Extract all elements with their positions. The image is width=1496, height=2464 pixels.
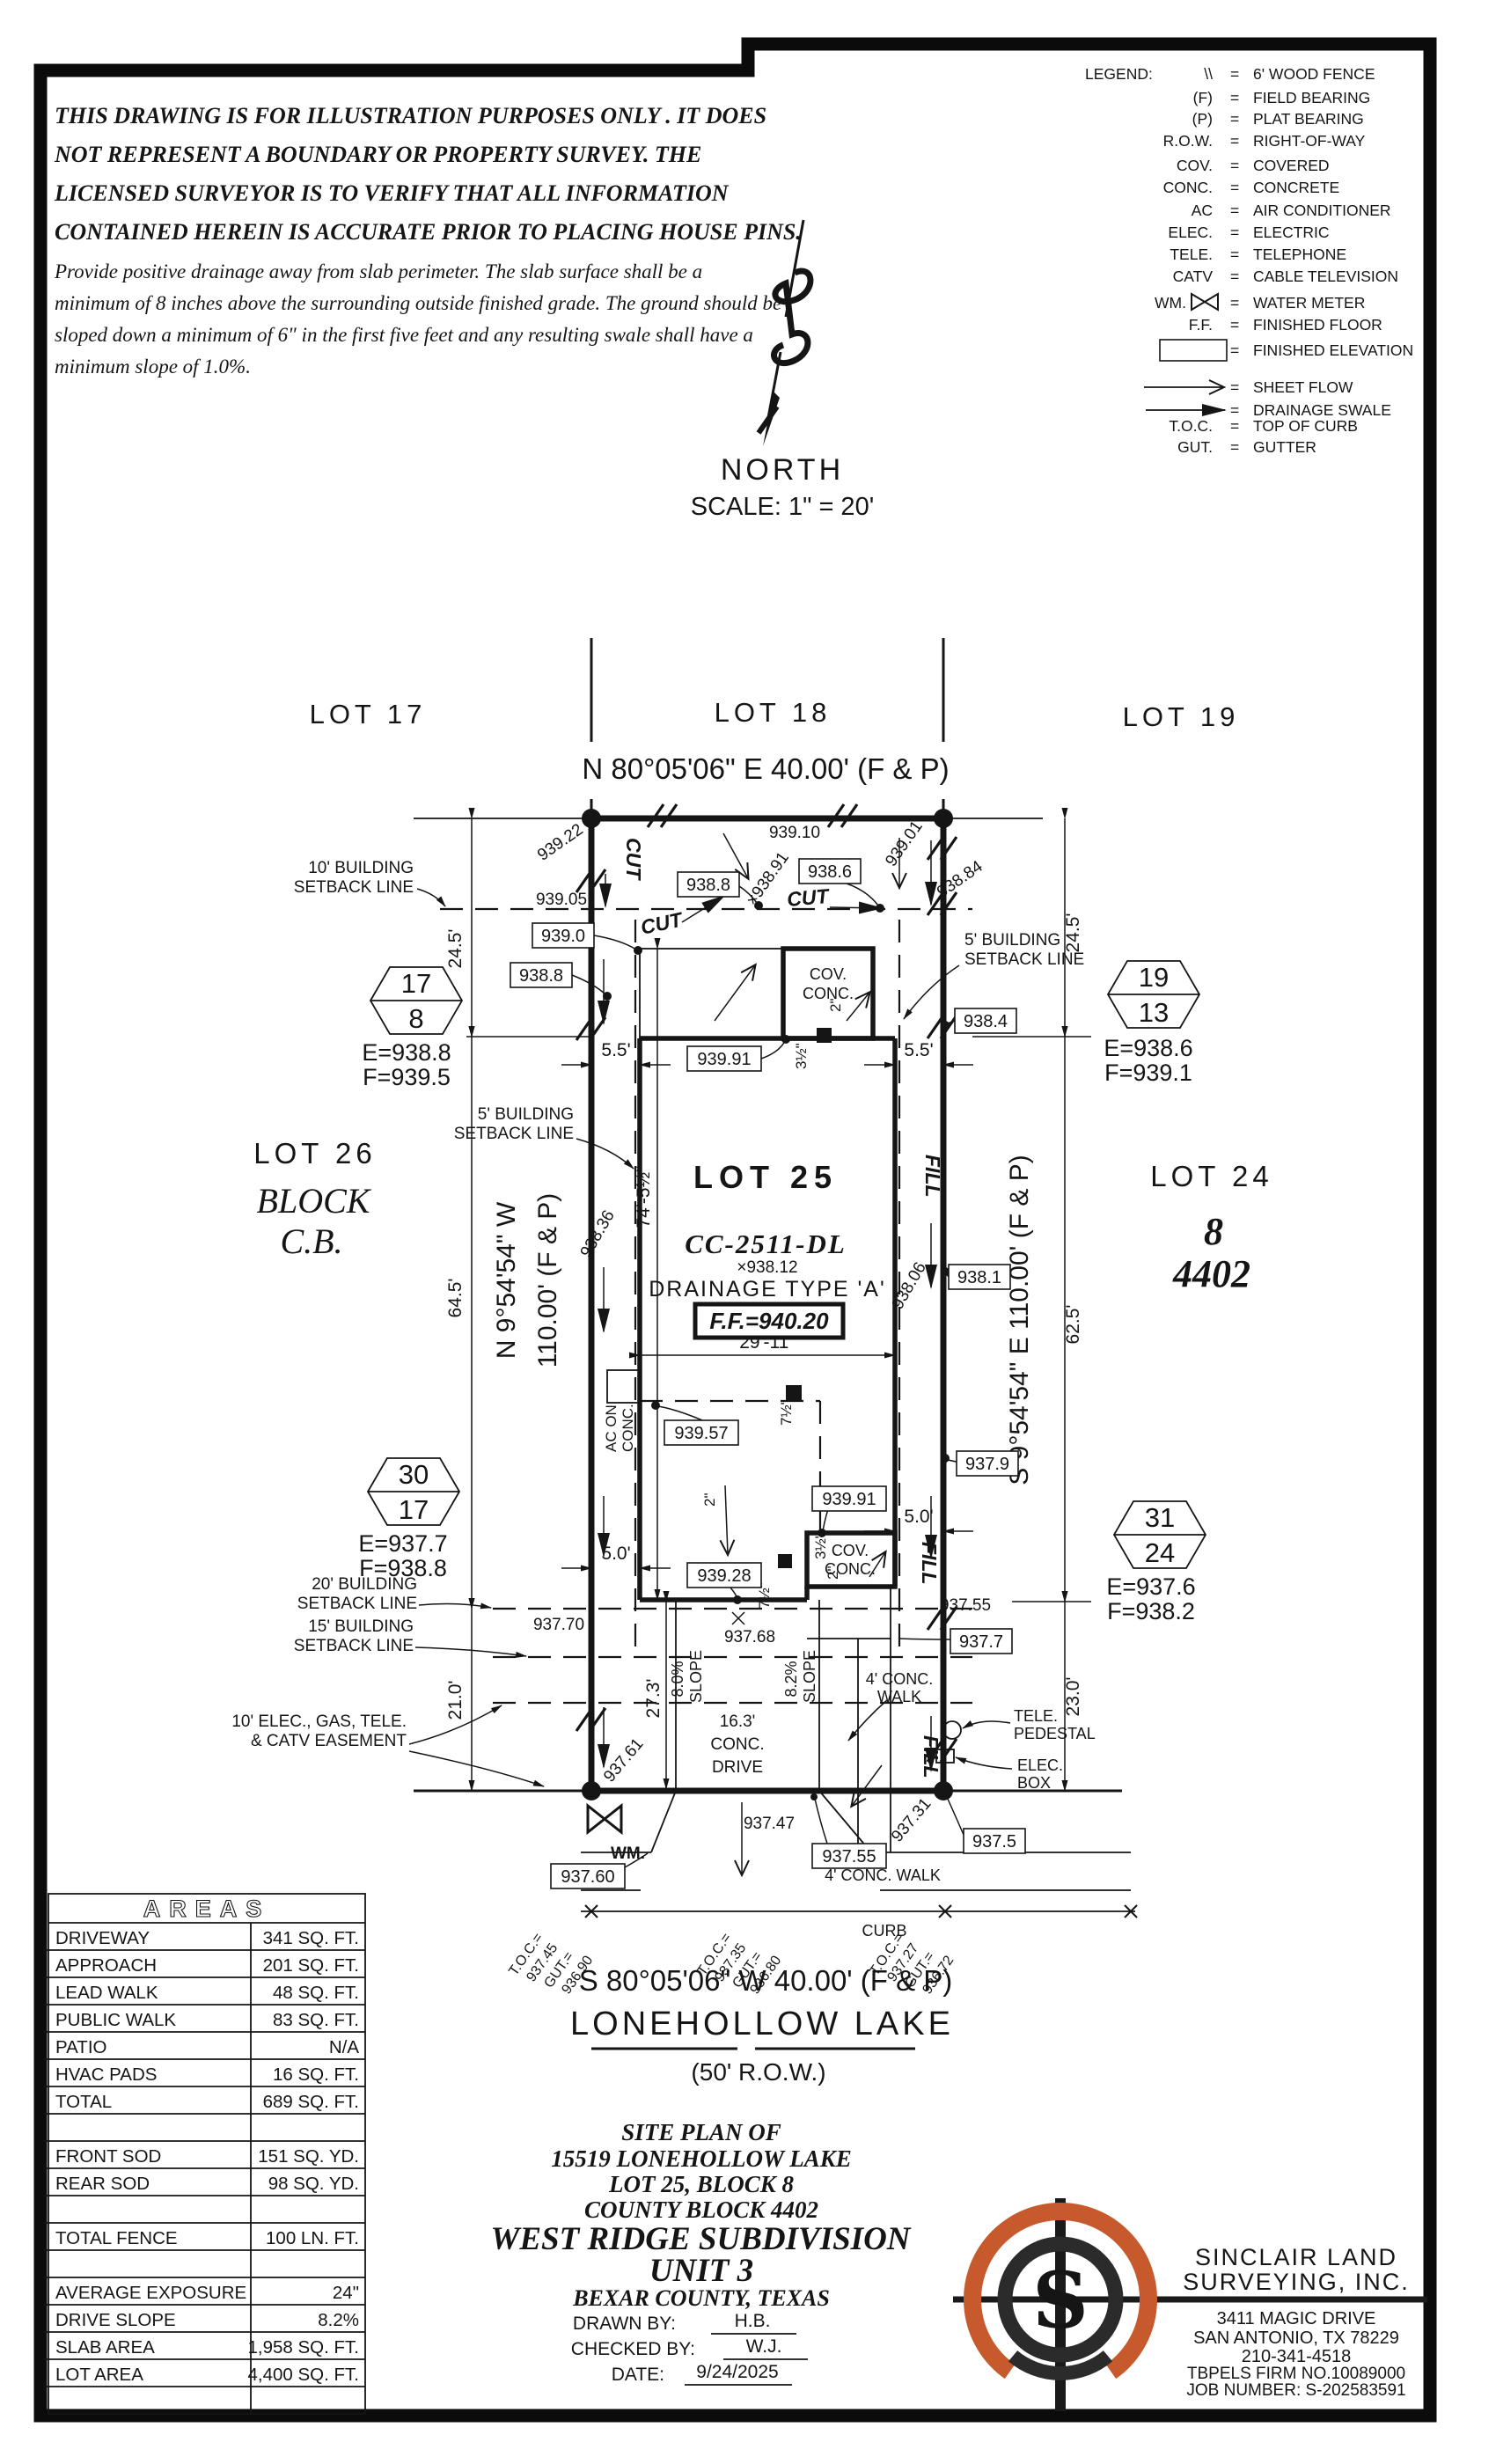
spot-elev: 937.61 — [600, 1734, 647, 1786]
hex-f-value: F=939.1 — [1104, 1060, 1192, 1086]
disclaimer-line: CONTAINED HEREIN IS ACCURATE PRIOR TO PL… — [55, 219, 802, 245]
lot26-label: LOT 26 — [253, 1137, 376, 1170]
legend-eq: = — [1230, 202, 1239, 219]
dim-24-5-east: 24.5' — [1063, 913, 1083, 953]
public-walk-label: 4' CONC. WALK — [825, 1866, 941, 1884]
legend-def: GUTTER — [1253, 438, 1316, 456]
areas-title: AREAS — [143, 1896, 271, 1922]
legend-title: LEGEND: — [1085, 65, 1153, 83]
easement-label-2: & CATV EASEMENT — [251, 1732, 407, 1750]
firm-name-1: SINCLAIR LAND — [1195, 2244, 1397, 2270]
legend-symbol: GUT. — [1177, 438, 1213, 456]
areas-row-label: TOTAL — [55, 2092, 112, 2112]
setback-5w-label-2: SETBACK LINE — [454, 1125, 574, 1143]
title-subdivision: WEST RIDGE SUBDIVISION — [490, 2221, 911, 2257]
hex-e-value: E=937.6 — [1106, 1573, 1195, 1600]
cut-label: CUT — [639, 907, 686, 939]
legend-def: FINISHED FLOOR — [1253, 316, 1382, 334]
drive-dim: 16.3' — [720, 1712, 756, 1731]
title-line: 15519 LONEHOLLOW LAKE — [551, 2145, 852, 2172]
areas-row-value: 201 SQ. FT. — [263, 1955, 359, 1976]
legend-eq: = — [1230, 89, 1239, 106]
areas-row-label: APPROACH — [55, 1955, 157, 1976]
legend-eq: = — [1230, 224, 1239, 241]
note-line: sloped down a minimum of 6" in the first… — [55, 324, 753, 346]
hex-top: 19 — [1139, 962, 1169, 993]
disclaimer-line: NOT REPRESENT A BOUNDARY OR PROPERTY SUR… — [54, 142, 701, 167]
legend-def: TOP OF CURB — [1253, 417, 1358, 435]
cut-label: CUT — [622, 838, 645, 881]
legend-eq: = — [1230, 157, 1239, 174]
lot19-label: LOT 19 — [1123, 701, 1240, 732]
cb-label: C.B. — [280, 1221, 342, 1261]
firm-block: S SINCLAIR LAND SURVEYING, INC. 3411 MAG… — [953, 2198, 1427, 2411]
cut-label: CUT — [786, 884, 831, 911]
areas-row-value: 48 SQ. FT. — [273, 1983, 359, 2003]
slope-8-0: 8.0% — [669, 1661, 686, 1697]
spot-elev: 937.47 — [744, 1815, 795, 1833]
elev-box: 939.0 — [541, 927, 585, 946]
legend-def: WATER METER — [1253, 294, 1365, 312]
slope-word-2: SLOPE — [801, 1650, 818, 1703]
lead-walk-label-2: WALK — [877, 1688, 921, 1705]
legend-def: 6' WOOD FENCE — [1253, 65, 1375, 83]
spot-elev: 939.10 — [769, 824, 820, 842]
water-meter-symbol — [588, 1806, 621, 1832]
areas-table: AREAS DRIVEWAY341 SQ. FT. APPROACH201 SQ… — [44, 1894, 365, 2414]
inch-2-rear: 2" — [827, 999, 844, 1013]
legend-eq: = — [1230, 246, 1239, 263]
hex-30-17: 30 17 — [368, 1458, 459, 1525]
dim-29-11: 29'-11" — [739, 1332, 796, 1353]
fill-label: FILL — [918, 1542, 941, 1585]
areas-row-value: 341 SQ. FT. — [263, 1928, 359, 1948]
legend-def: DRAINAGE SWALE — [1253, 401, 1391, 419]
legend-eq: = — [1230, 268, 1239, 285]
street-labels: WM. TELE. PEDESTAL ELEC. BOX 4' CONC. WA… — [506, 1707, 1095, 2086]
block-word: BLOCK — [257, 1181, 372, 1221]
spot-elev: 937.31 — [888, 1794, 935, 1845]
legend-symbol: ELEC. — [1168, 224, 1213, 241]
spot-elev: 939.01 — [882, 818, 927, 870]
hex-top: 17 — [401, 968, 431, 999]
areas-row-label: AVERAGE EXPOSURE — [55, 2283, 246, 2303]
finished-floor-value: F.F.=940.20 — [709, 1308, 829, 1334]
legend-eq: = — [1230, 132, 1239, 150]
tele-pedestal-label-1: TELE. — [1014, 1707, 1058, 1725]
leaders — [409, 884, 1012, 1867]
drainage-type: DRAINAGE TYPE 'A' — [649, 1277, 886, 1302]
drawn-by-label: DRAWN BY: — [573, 2314, 676, 2334]
legend-def: COVERED — [1253, 157, 1330, 174]
inch-3half-rear: 3½" — [793, 1043, 810, 1069]
elev-box: 938.4 — [964, 1012, 1008, 1031]
title-line: COUNTY BLOCK 4402 — [584, 2196, 818, 2223]
title-block: SITE PLAN OF 15519 LONEHOLLOW LAKE LOT 2… — [490, 2119, 911, 2385]
dim-5-0-west: 5.0' — [601, 1544, 630, 1564]
dim-5-0-east: 5.0' — [904, 1507, 933, 1527]
legend-symbol: TELE. — [1170, 246, 1213, 263]
inch-7half-mid: 7½" — [778, 1399, 795, 1426]
hex-bottom: 8 — [408, 1003, 423, 1034]
legend-def: PLAT BEARING — [1253, 110, 1364, 128]
areas-row-label: FRONT SOD — [55, 2146, 161, 2167]
legend-symbol: (F) — [1193, 89, 1213, 106]
setback-5e-label-1: 5' BUILDING — [964, 931, 1060, 950]
title-unit: UNIT 3 — [649, 2253, 753, 2289]
setback-15-label-1: 15' BUILDING — [308, 1617, 414, 1636]
legend-def: AIR CONDITIONER — [1253, 202, 1391, 219]
hex-e-value: E=937.7 — [358, 1530, 447, 1557]
legend-symbol: T.O.C. — [1169, 417, 1213, 435]
firm-address-2: SAN ANTONIO, TX 78229 — [1193, 2328, 1399, 2348]
legend-symbol-wm: WM. — [1155, 294, 1186, 312]
elev-box: 938.6 — [808, 862, 852, 882]
lot17-label: LOT 17 — [310, 699, 427, 730]
north-arrow-shaft — [767, 220, 803, 422]
north-label: NORTH — [721, 453, 844, 487]
north-arrow: NORTH SCALE: 1" = 20' — [691, 220, 874, 521]
legend-def: FINISHED ELEVATION — [1253, 341, 1413, 359]
setback-10-label-1: 10' BUILDING — [308, 859, 414, 877]
legend-eq: = — [1230, 341, 1239, 359]
inch-2-porch: 2" — [825, 1566, 841, 1580]
legend-eq: = — [1230, 438, 1239, 456]
spot-938-12: ×938.12 — [737, 1258, 797, 1277]
lead-walk-label-1: 4' CONC. — [866, 1670, 933, 1688]
elev-box: 938.8 — [519, 966, 563, 986]
firm-job-number: JOB NUMBER: S-202583591 — [1186, 2381, 1405, 2400]
spot-elev: 937.70 — [533, 1616, 584, 1634]
hex-bottom: 17 — [399, 1494, 429, 1525]
cov-conc-front-1: COV. — [832, 1542, 869, 1559]
areas-row-label: PATIO — [55, 2037, 106, 2057]
hex-bottom: 24 — [1145, 1537, 1175, 1568]
note-line: minimum of 8 inches above the surroundin… — [55, 292, 781, 314]
dim-24-5-west: 24.5' — [445, 929, 466, 969]
checked-by-value: W.J. — [746, 2336, 782, 2357]
inch-3half-porch: 3½" — [812, 1533, 829, 1559]
legend-eq: = — [1230, 179, 1239, 196]
elevation-boxes: 939.0 938.8 938.8 938.6 938.4 938.1 937.… — [510, 859, 1025, 1888]
dim-62-5: 62.5' — [1063, 1305, 1083, 1345]
firm-address-1: 3411 MAGIC DRIVE — [1217, 2309, 1376, 2328]
elev-box: 937.9 — [965, 1455, 1009, 1474]
areas-row-value: 98 SQ. YD. — [268, 2174, 359, 2194]
areas-row-value: 8.2% — [318, 2310, 359, 2330]
lot24-label: LOT 24 — [1150, 1160, 1272, 1192]
wm-label: WM. — [611, 1844, 645, 1863]
elev-box: 937.60 — [561, 1867, 614, 1887]
setback-15-label-2: SETBACK LINE — [294, 1637, 414, 1655]
cov-conc-rear-1: COV. — [810, 965, 847, 983]
legend-eq: = — [1230, 401, 1239, 419]
legend-def: TELEPHONE — [1253, 246, 1346, 263]
legend-symbol: R.O.W. — [1163, 132, 1213, 150]
areas-row-value: 4,400 SQ. FT. — [248, 2365, 359, 2385]
legend-symbol: CONC. — [1163, 179, 1213, 196]
inch-2-mid: 2" — [701, 1493, 718, 1507]
ac-label-1: AC ON — [603, 1404, 620, 1452]
bearing-west-1: N 9°54'54" W — [492, 1201, 521, 1359]
elev-box: 938.8 — [686, 876, 730, 895]
areas-row-label: DRIVEWAY — [55, 1928, 150, 1948]
ac-label-2: CONC. — [620, 1404, 636, 1452]
elev-box: 939.91 — [822, 1490, 876, 1509]
fill-label: FILL — [921, 1155, 944, 1198]
elev-box: 939.28 — [697, 1566, 751, 1586]
hex-19-13: 19 13 — [1108, 961, 1199, 1028]
hex-top: 30 — [399, 1459, 429, 1490]
legend: LEGEND: \\ (F) (P) R.O.W. COV. CONC. AC … — [1085, 65, 1413, 456]
elec-box-label-2: BOX — [1017, 1774, 1051, 1792]
spot-elev: 937.68 — [724, 1628, 775, 1646]
setback-20-label-2: SETBACK LINE — [297, 1595, 417, 1613]
areas-row-label: LOT AREA — [55, 2365, 143, 2385]
dim-64-5: 64.5' — [445, 1279, 466, 1318]
bearing-west-2: 110.00' (F & P) — [533, 1193, 562, 1368]
legend-symbol: COV. — [1177, 157, 1213, 174]
spot-elev: 939.05 — [536, 891, 587, 909]
setback-labels: 10' BUILDING SETBACK LINE 5' BUILDING SE… — [231, 859, 1084, 1750]
fill-label: FILL — [920, 1735, 942, 1778]
lot25-label: LOT 25 — [693, 1159, 838, 1195]
elev-box: 937.7 — [959, 1632, 1003, 1652]
elev-box: 938.1 — [957, 1268, 1001, 1287]
site-plan-drawing: THIS DRAWING IS FOR ILLUSTRATION PURPOSE… — [0, 0, 1496, 2464]
areas-row-value: N/A — [329, 2037, 360, 2057]
hex-31-24: 31 24 — [1114, 1501, 1206, 1568]
date-value: 9/24/2025 — [696, 2362, 778, 2382]
scale-label: SCALE: 1" = 20' — [691, 493, 874, 521]
firm-phone: 210-341-4518 — [1242, 2347, 1352, 2366]
hex-f-value: F=938.2 — [1107, 1598, 1195, 1624]
finished-elevation-box-icon — [1160, 340, 1227, 361]
legend-eq: = — [1230, 294, 1239, 312]
spot-elev: 937.55 — [940, 1596, 991, 1615]
areas-row-value: 151 SQ. YD. — [258, 2146, 359, 2167]
easement-label-1: 10' ELEC., GAS, TELE. — [231, 1712, 407, 1731]
dim-74-5half: 74'-5½" — [634, 1165, 654, 1228]
hex-17-8: 17 8 — [370, 967, 462, 1034]
site-plan-sheet: THIS DRAWING IS FOR ILLUSTRATION PURPOSE… — [0, 0, 1496, 2464]
spot-elev: 939.22 — [534, 820, 587, 865]
elev-box: 937.5 — [972, 1832, 1016, 1852]
date-label: DATE: — [612, 2365, 664, 2385]
areas-row-label: REAR SOD — [55, 2174, 150, 2194]
areas-row-value: 83 SQ. FT. — [273, 2010, 359, 2030]
tele-pedestal-label-2: PEDESTAL — [1014, 1725, 1096, 1742]
street-name: LONEHOLLOW LAKE — [570, 2006, 954, 2042]
legend-symbol: (P) — [1192, 110, 1213, 128]
drainage-note: Provide positive drainage away from slab… — [54, 260, 781, 378]
hex-e-value: E=938.8 — [362, 1039, 451, 1066]
legend-eq: = — [1230, 378, 1239, 396]
bearing-east: S 9°54'54" E 110.00' (F & P) — [1005, 1155, 1034, 1485]
slope-word-1: SLOPE — [687, 1650, 705, 1703]
drawn-by-value: H.B. — [735, 2311, 771, 2331]
areas-row-label: TOTAL FENCE — [55, 2228, 178, 2248]
legend-def: ELECTRIC — [1253, 224, 1330, 241]
plan-model: CC-2511-DL — [685, 1228, 847, 1259]
legend-def: RIGHT-OF-WAY — [1253, 132, 1366, 150]
dim-23-0: 23.0' — [1063, 1677, 1083, 1717]
setback-5w-label-1: 5' BUILDING — [478, 1105, 574, 1124]
dim-27-3: 27.3' — [643, 1679, 664, 1719]
areas-row-value: 689 SQ. FT. — [263, 2092, 359, 2112]
dim-5-5-west: 5.5' — [601, 1040, 630, 1060]
areas-row-label: LEAD WALK — [55, 1983, 158, 2003]
areas-row-value: 16 SQ. FT. — [273, 2064, 359, 2085]
disclaimer-line: THIS DRAWING IS FOR ILLUSTRATION PURPOSE… — [55, 103, 766, 128]
elev-box: 939.57 — [674, 1424, 728, 1443]
legend-def: CABLE TELEVISION — [1253, 268, 1398, 285]
legend-symbol: F.F. — [1189, 316, 1213, 334]
elev-box: 939.91 — [697, 1050, 751, 1069]
legend-symbol: \\ — [1204, 65, 1213, 83]
title-line: LOT 25, BLOCK 8 — [608, 2171, 795, 2197]
note-line: minimum slope of 1.0%. — [55, 356, 251, 378]
firm-tbpels: TBPELS FIRM NO.10089000 — [1187, 2365, 1405, 2383]
hex-f-value: F=938.8 — [359, 1555, 447, 1581]
areas-row-value: 1,958 SQ. FT. — [248, 2337, 359, 2358]
areas-row-label: SLAB AREA — [55, 2337, 155, 2358]
drive-label-2: DRIVE — [712, 1758, 763, 1777]
setback-10-label-2: SETBACK LINE — [294, 878, 414, 897]
street-row: (50' R.O.W.) — [691, 2058, 825, 2086]
disclaimer-note: THIS DRAWING IS FOR ILLUSTRATION PURPOSE… — [54, 103, 802, 245]
title-line: SITE PLAN OF — [621, 2119, 781, 2145]
hex-e-value: E=938.6 — [1104, 1035, 1192, 1061]
slope-8-2: 8.2% — [782, 1661, 800, 1697]
block8-label: 8 — [1204, 1210, 1223, 1253]
house-labels: CC-2511-DL ×938.12 DRAINAGE TYPE 'A' F.F… — [603, 965, 933, 1777]
note-line: Provide positive drainage away from slab… — [54, 260, 702, 282]
hex-top: 31 — [1145, 1502, 1175, 1533]
legend-eq: = — [1230, 417, 1239, 435]
areas-row-label: DRIVE SLOPE — [55, 2310, 176, 2330]
drive-label-1: CONC. — [710, 1735, 764, 1754]
hex-f-value: F=939.5 — [363, 1064, 451, 1090]
spot-elev: ×938.91 — [743, 848, 793, 909]
cb4402-label: 4402 — [1172, 1252, 1250, 1295]
water-meter-icon — [1192, 294, 1218, 310]
dim-21-0: 21.0' — [445, 1681, 466, 1720]
title-county: BEXAR COUNTY, TEXAS — [572, 2285, 830, 2311]
logo-s: S — [1032, 2255, 1089, 2346]
elev-box: 937.55 — [822, 1847, 876, 1866]
legend-def: CONCRETE — [1253, 179, 1339, 196]
legend-eq: = — [1230, 316, 1239, 334]
areas-row-label: HVAC PADS — [55, 2064, 157, 2085]
areas-row-value: 24" — [333, 2283, 359, 2303]
hex-bottom: 13 — [1139, 997, 1169, 1028]
legend-eq: = — [1230, 65, 1239, 83]
legend-symbol: CATV — [1173, 268, 1214, 285]
legend-symbol: AC — [1192, 202, 1213, 219]
areas-row-value: 100 LN. FT. — [266, 2228, 359, 2248]
spot-elev: 938.36 — [577, 1207, 619, 1261]
checked-by-label: CHECKED BY: — [571, 2339, 695, 2359]
legend-def: FIELD BEARING — [1253, 89, 1370, 106]
areas-row-label: PUBLIC WALK — [55, 2010, 176, 2030]
elec-box-label-1: ELEC. — [1017, 1756, 1063, 1774]
lot18-label: LOT 18 — [715, 697, 832, 728]
bearing-north: N 80°05'06" E 40.00' (F & P) — [582, 752, 949, 785]
disclaimer-line: LICENSED SURVEYOR IS TO VERIFY THAT ALL … — [54, 180, 730, 206]
dim-5-5-east: 5.5' — [904, 1040, 933, 1060]
legend-eq: = — [1230, 110, 1239, 128]
legend-def: SHEET FLOW — [1253, 378, 1353, 396]
firm-name-2: SURVEYING, INC. — [1183, 2269, 1410, 2295]
